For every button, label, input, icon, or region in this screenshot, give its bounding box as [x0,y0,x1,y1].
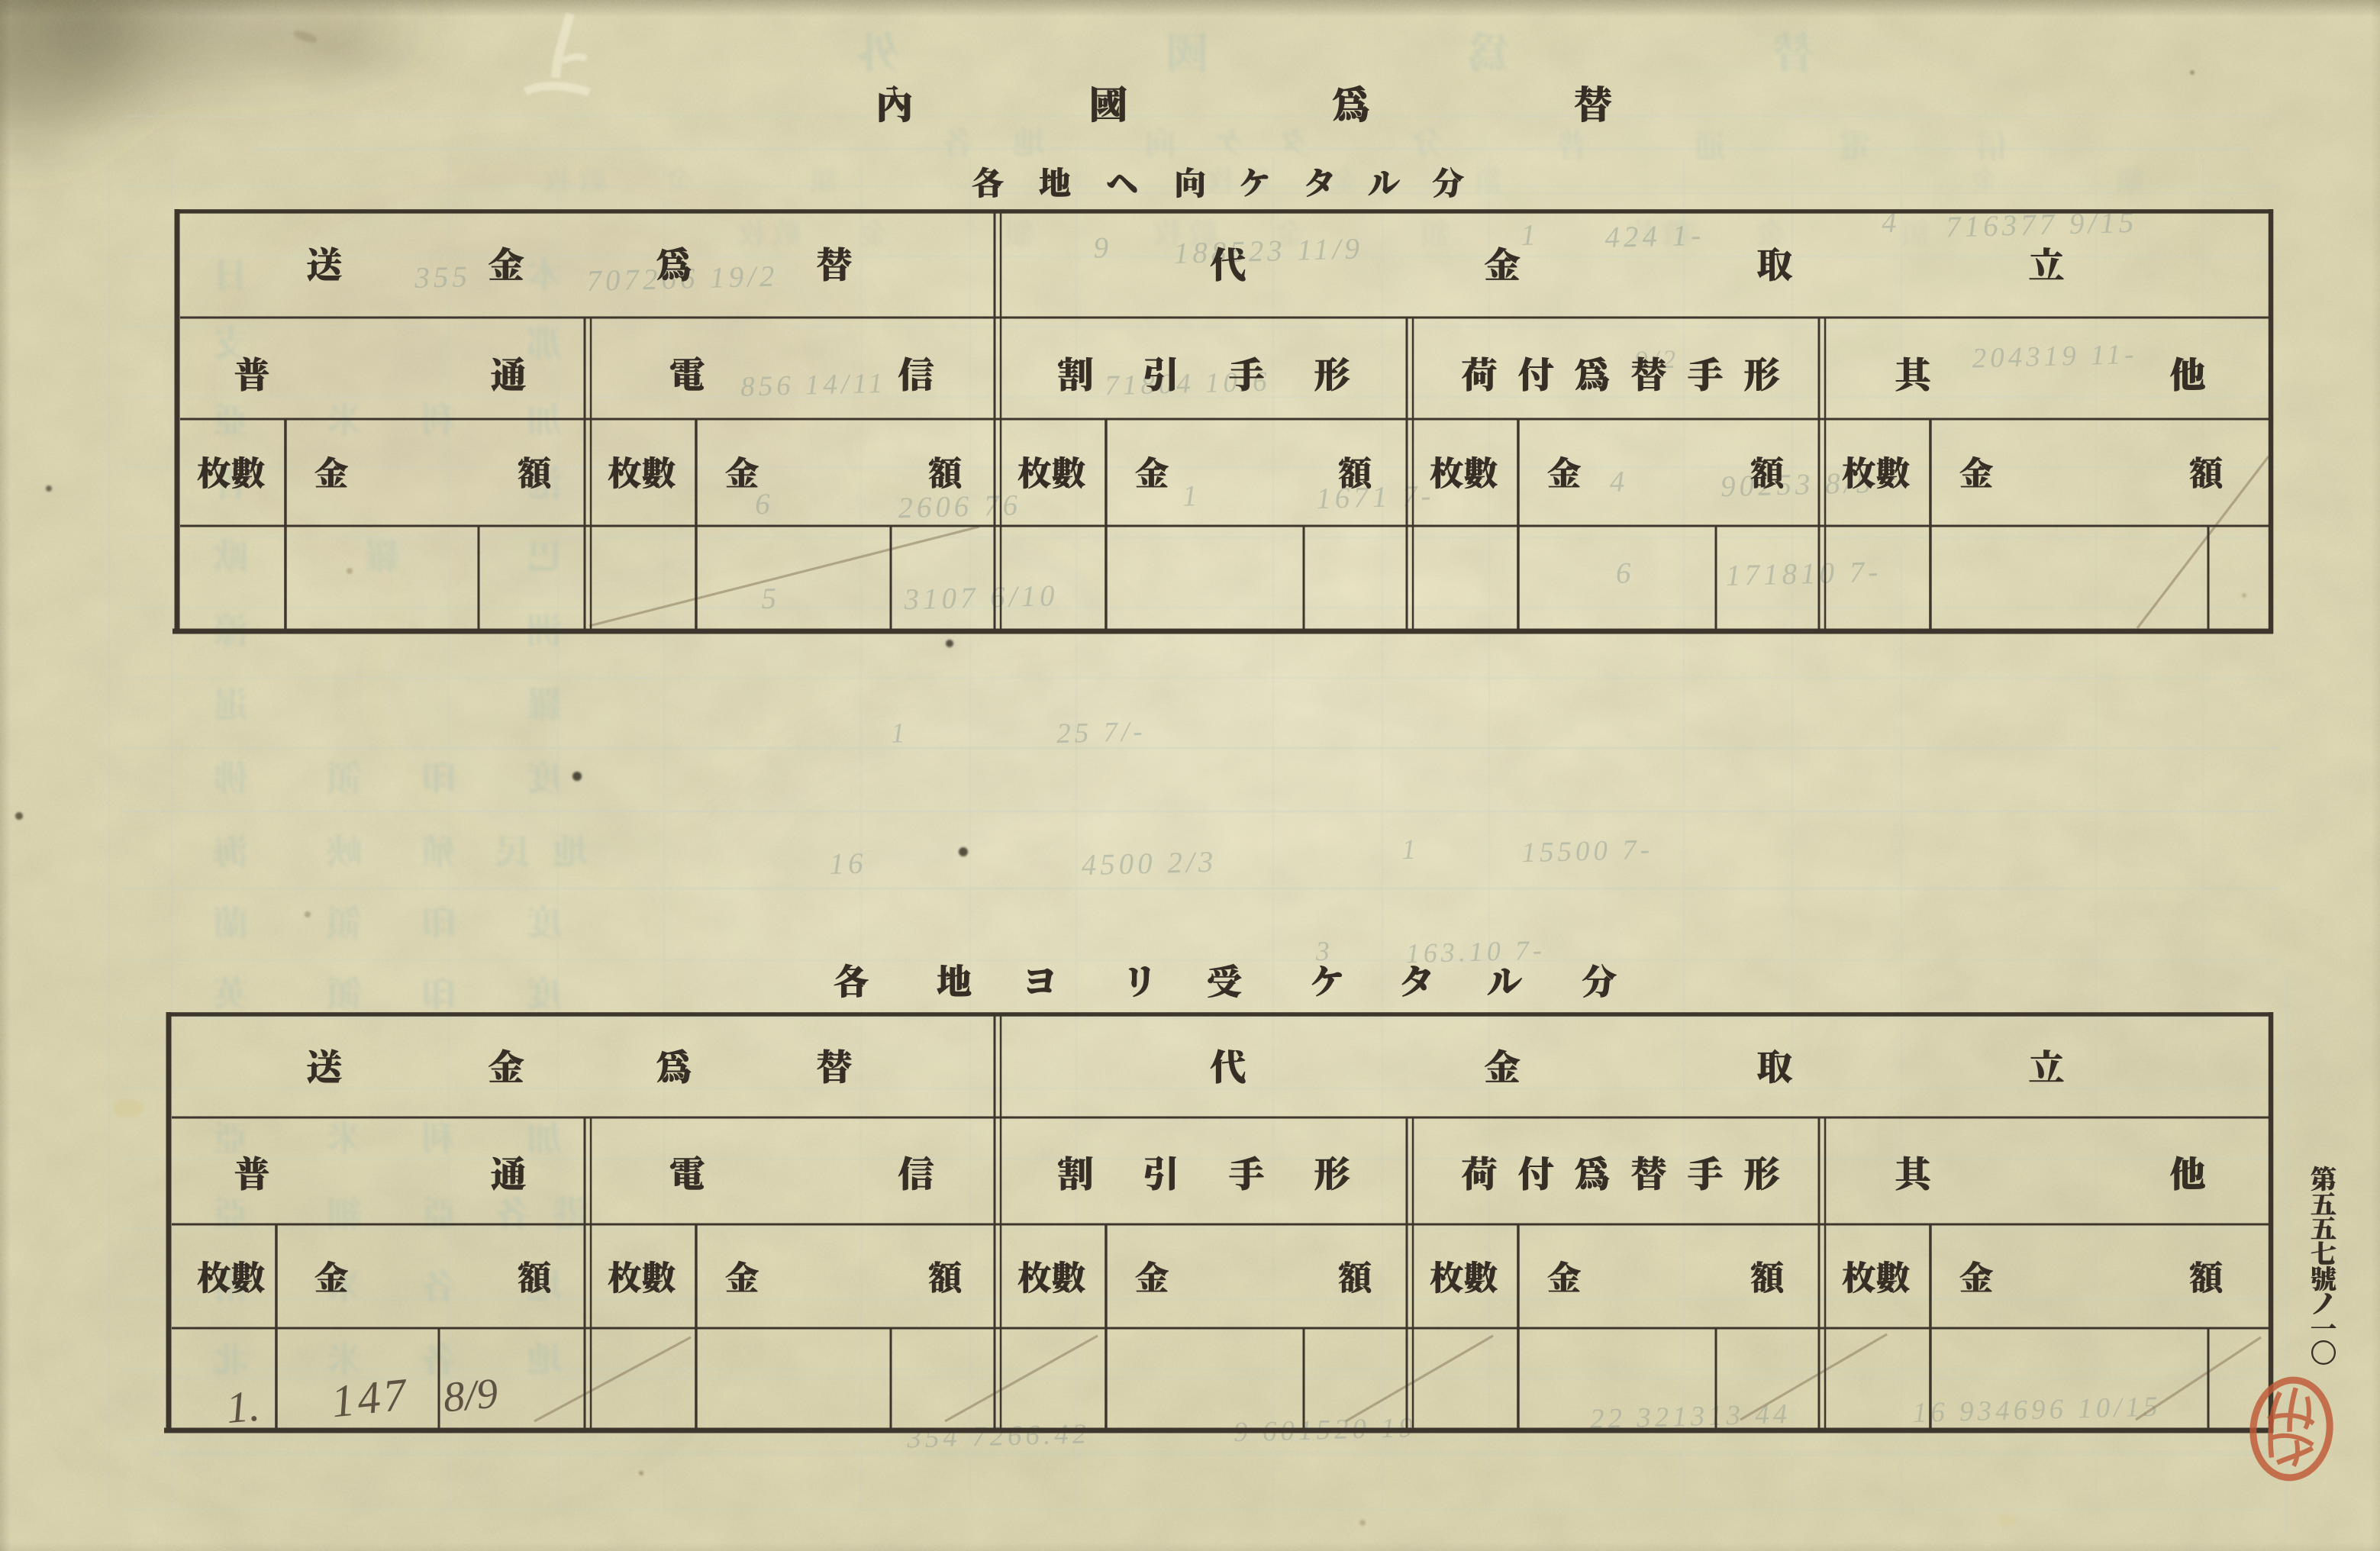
svg-text:188523 11/9: 188523 11/9 [1173,232,1363,269]
svg-text:6: 6 [1615,556,1635,590]
svg-text:1.: 1. [224,1381,262,1433]
svg-text:163.10 7-: 163.10 7- [1405,934,1546,969]
svg-text:3: 3 [1314,936,1334,967]
svg-text:1: 1 [1521,218,1540,252]
svg-text:3107 6/10: 3107 6/10 [903,579,1059,616]
svg-text:9: 9 [1093,231,1113,265]
svg-text:4: 4 [1609,465,1629,498]
svg-text:1: 1 [1182,479,1202,513]
svg-text:171810 7-: 171810 7- [1726,556,1882,592]
svg-text:1: 1 [891,717,910,750]
svg-text:8/9: 8/9 [441,1370,500,1422]
svg-text:147: 147 [329,1369,411,1427]
svg-text:25 7/-: 25 7/- [1056,716,1146,750]
svg-text:204319 11-: 204319 11- [1972,339,2138,375]
svg-text:5: 5 [761,582,781,616]
svg-text:16 934696 10/15: 16 934696 10/15 [1912,1391,2162,1430]
svg-text:2606 76: 2606 76 [898,489,1022,524]
svg-text:1671 7-: 1671 7- [1316,479,1435,515]
svg-text:15500 7-: 15500 7- [1521,834,1654,869]
svg-text:354 7266.42: 354 7266.42 [906,1418,1091,1454]
svg-text:1: 1 [1401,834,1421,866]
svg-text:424 1-: 424 1- [1604,219,1705,254]
svg-text:355: 355 [414,260,472,295]
svg-text:16: 16 [829,847,867,881]
svg-text:856 14/11: 856 14/11 [740,368,887,403]
svg-text:6: 6 [755,488,775,521]
svg-text:4500 2/3: 4500 2/3 [1081,846,1217,882]
